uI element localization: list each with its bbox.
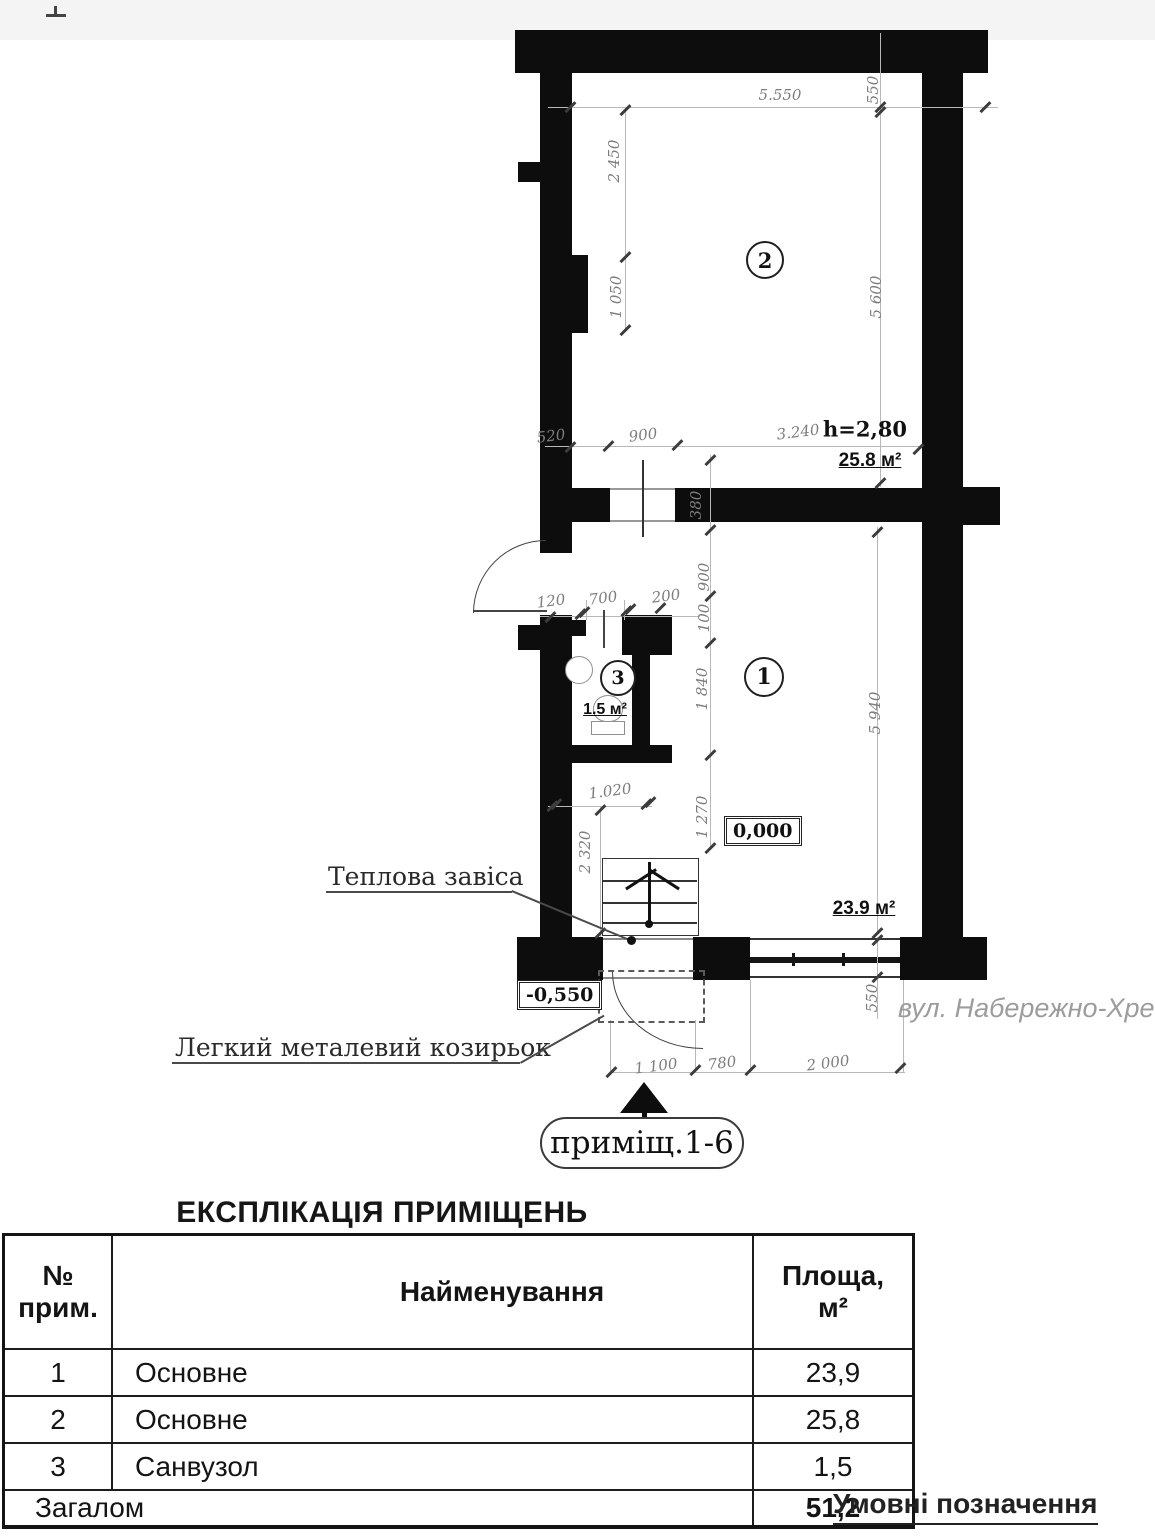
explication-heading: ЕКСПЛІКАЦІЯ ПРИМІЩЕНЬ [168,1196,596,1230]
cell-number: 2 [4,1396,113,1443]
callout-underline [326,891,512,893]
dimension-line [710,455,711,848]
cell-name: Основне [112,1349,753,1396]
col-header-line: прим. [6,1292,110,1324]
col-header-area: Площа, м² [753,1235,914,1350]
dimension-label: 550 [863,984,881,1013]
callout-underline [172,1062,520,1064]
room1-area-label: 23.9 м² [833,898,896,920]
callout-target-dot [627,936,636,945]
wall-segment [572,488,610,522]
door-leaf-interior [642,460,644,537]
stair-start-dot [645,920,653,928]
elevation-mark-entry: -0,550 [517,980,602,1010]
door-leaf-bathroom [603,610,605,648]
wall-segment [540,73,572,553]
dimension-label: 1 840 [693,668,711,711]
dimension-label: 1 050 [607,276,625,319]
sink-icon [565,656,593,684]
cell-name: Санвузол [112,1443,753,1490]
cell-name: Основне [112,1396,753,1443]
col-header-number: № прим. [4,1235,113,1350]
col-header-line: Площа, [755,1260,911,1292]
floor-plan-sheet: 2 1 3 25.8 м² 23.9 м² 1.5 м² h=2,80 0,00… [0,0,1155,1540]
dimension-label: 5.550 [759,86,802,104]
ceiling-height-label: h=2,80 [823,417,907,442]
entrance-arrow-icon [620,1082,668,1113]
wall-segment [900,937,987,980]
table-header-row: № прим. Найменування Площа, м² [4,1235,914,1350]
wall-segment [566,745,672,763]
dimension-label: 1 100 [634,1054,679,1077]
cell-number: 1 [4,1349,113,1396]
street-name-text: вул. Набережно-Хрещ [898,993,1155,1023]
premises-stamp: приміщ.1-6 [540,1117,744,1169]
wall-segment [515,30,988,73]
wall-segment [572,620,586,636]
dimension-label: 120 [536,590,567,611]
toilet-tank-icon [591,721,625,735]
dimension-line [625,107,626,332]
dimension-line [540,616,700,617]
wall-segment [922,73,963,937]
dimension-label: 5 940 [866,692,884,735]
street-name-label: вул. Набережно-Хрещ [898,993,1155,1029]
dimension-label: 550 [864,76,882,105]
col-header-line: м² [755,1292,911,1324]
dimension-label: 100 [695,604,713,633]
room2-area-label: 25.8 м² [839,450,902,472]
dimension-label: 2 320 [576,831,594,874]
elevation-mark-zero: 0,000 [724,816,802,846]
room-circle-1: 1 [744,657,784,697]
table-row: 2Основне25,8 [4,1396,914,1443]
dimension-label: 1 270 [693,796,711,839]
dimension-label: 900 [695,563,713,592]
dimension-label: 520 [536,425,567,446]
dimension-line [548,107,998,108]
dimension-line [600,806,601,937]
elevation-value: 0,000 [726,818,800,844]
threshold-line [603,938,693,940]
dimension-label: 3.240 [776,420,821,443]
room-circle-2: 2 [746,241,784,279]
col-header-name: Найменування [112,1235,753,1350]
dimension-label: 5 600 [867,276,885,319]
window-tick [842,953,845,966]
dimension-label: 1.020 [588,779,633,802]
room-number: 1 [756,664,771,690]
cell-area: 23,9 [753,1349,914,1396]
wall-segment [963,487,1000,525]
cell-number: 3 [4,1443,113,1490]
total-label: Загалом [4,1490,754,1527]
room-number: 2 [758,248,773,273]
room-circle-3: 3 [600,660,636,696]
dimension-label: 200 [651,585,682,606]
dimension-label: 700 [588,587,619,608]
thermal-curtain-callout: Теплова завіса [328,862,524,891]
elevation-value: -0,550 [519,982,600,1008]
wall-segment [517,937,603,980]
dimension-label: 380 [687,491,705,520]
cell-area: 25,8 [753,1396,914,1443]
cell-area: 1,5 [753,1443,914,1490]
room3-area-label: 1.5 м² [583,701,627,719]
scan-artifact [54,6,57,17]
door-arc-left [473,540,546,613]
wall-segment [518,162,540,182]
wall-segment [675,488,922,522]
canopy-callout: Легкий металевий козирьок [175,1033,551,1062]
wall-segment [518,625,540,650]
dimension-line [610,1020,611,1072]
dimension-label: 2 450 [605,140,623,183]
premises-stamp-text: приміщ.1-6 [550,1125,734,1161]
table-row: 3Санвузол1,5 [4,1443,914,1490]
door-leaf-left [473,610,547,612]
dimension-line [545,446,923,447]
explication-table: № прим. Найменування Площа, м² 1Основне2… [2,1233,915,1529]
dimension-label: 900 [628,424,659,445]
dimension-tick [671,439,683,451]
legend-title: Умовні позначення [833,1488,1098,1525]
canopy-dashed-outline [598,970,705,1023]
room-number: 3 [611,667,624,689]
dimension-label: 780 [707,1052,738,1073]
table-total-row: Загалом 51,2 [4,1490,914,1527]
wall-segment [622,615,672,655]
col-header-line: № [6,1260,110,1292]
wall-segment [572,255,588,333]
dimension-line [750,980,751,1072]
window-tick [792,953,795,966]
table-row: 1Основне23,9 [4,1349,914,1396]
